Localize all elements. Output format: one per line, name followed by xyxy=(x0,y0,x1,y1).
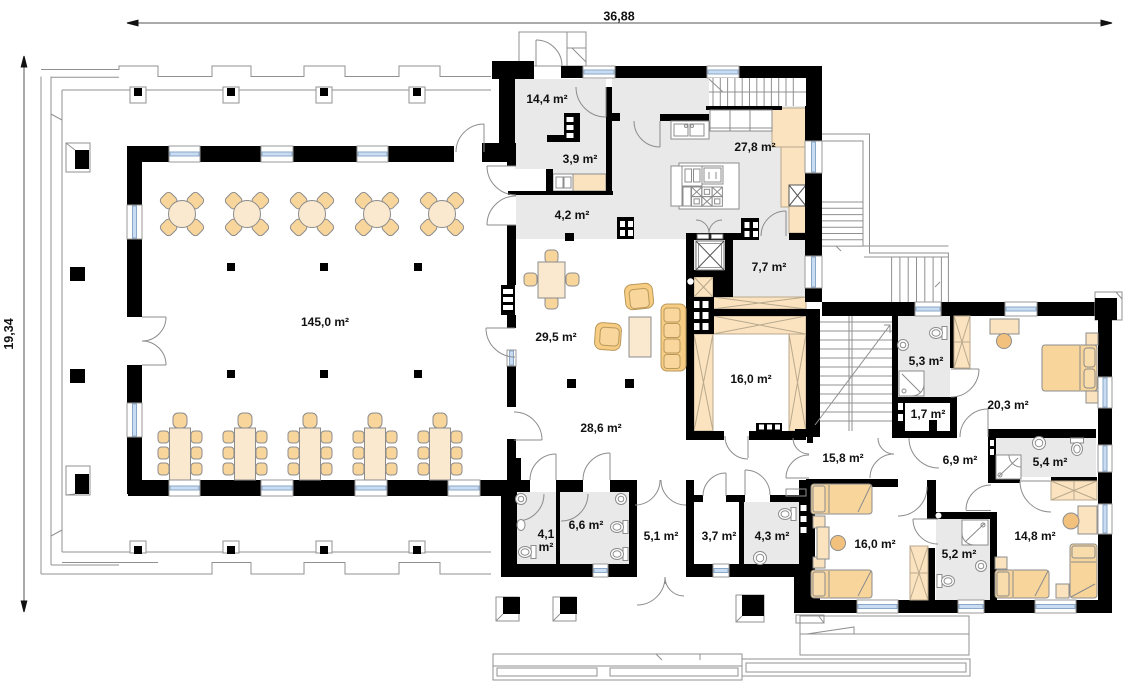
svg-text:1,7 m²: 1,7 m² xyxy=(911,407,946,421)
svg-text:27,8 m²: 27,8 m² xyxy=(734,140,775,154)
svg-text:16,0 m²: 16,0 m² xyxy=(854,537,895,551)
svg-text:14,4 m²: 14,4 m² xyxy=(526,92,567,106)
svg-text:4,1: 4,1 xyxy=(538,527,555,541)
svg-text:29,5 m²: 29,5 m² xyxy=(535,330,576,344)
svg-text:28,6 m²: 28,6 m² xyxy=(580,421,621,435)
svg-text:3,9 m²: 3,9 m² xyxy=(563,152,598,166)
svg-text:20,3 m²: 20,3 m² xyxy=(987,398,1028,412)
svg-text:16,0 m²: 16,0 m² xyxy=(730,372,771,386)
svg-text:14,8 m²: 14,8 m² xyxy=(1014,529,1055,543)
svg-text:4,3 m²: 4,3 m² xyxy=(755,529,790,543)
svg-text:19,34: 19,34 xyxy=(2,318,16,349)
svg-text:7,7 m²: 7,7 m² xyxy=(752,260,787,274)
svg-text:6,6 m²: 6,6 m² xyxy=(569,518,604,532)
svg-text:3,7 m²: 3,7 m² xyxy=(702,529,737,543)
svg-text:m²: m² xyxy=(539,540,554,554)
svg-text:36,88: 36,88 xyxy=(603,10,634,24)
svg-text:5,1 m²: 5,1 m² xyxy=(644,529,679,543)
svg-text:6,9 m²: 6,9 m² xyxy=(943,453,978,467)
svg-text:5,4 m²: 5,4 m² xyxy=(1033,455,1068,469)
svg-text:4,2 m²: 4,2 m² xyxy=(555,208,590,222)
svg-text:15,8 m²: 15,8 m² xyxy=(822,451,863,465)
svg-text:5,2 m²: 5,2 m² xyxy=(942,547,977,561)
svg-text:5,3 m²: 5,3 m² xyxy=(909,354,944,368)
svg-text:145,0 m²: 145,0 m² xyxy=(301,315,349,329)
